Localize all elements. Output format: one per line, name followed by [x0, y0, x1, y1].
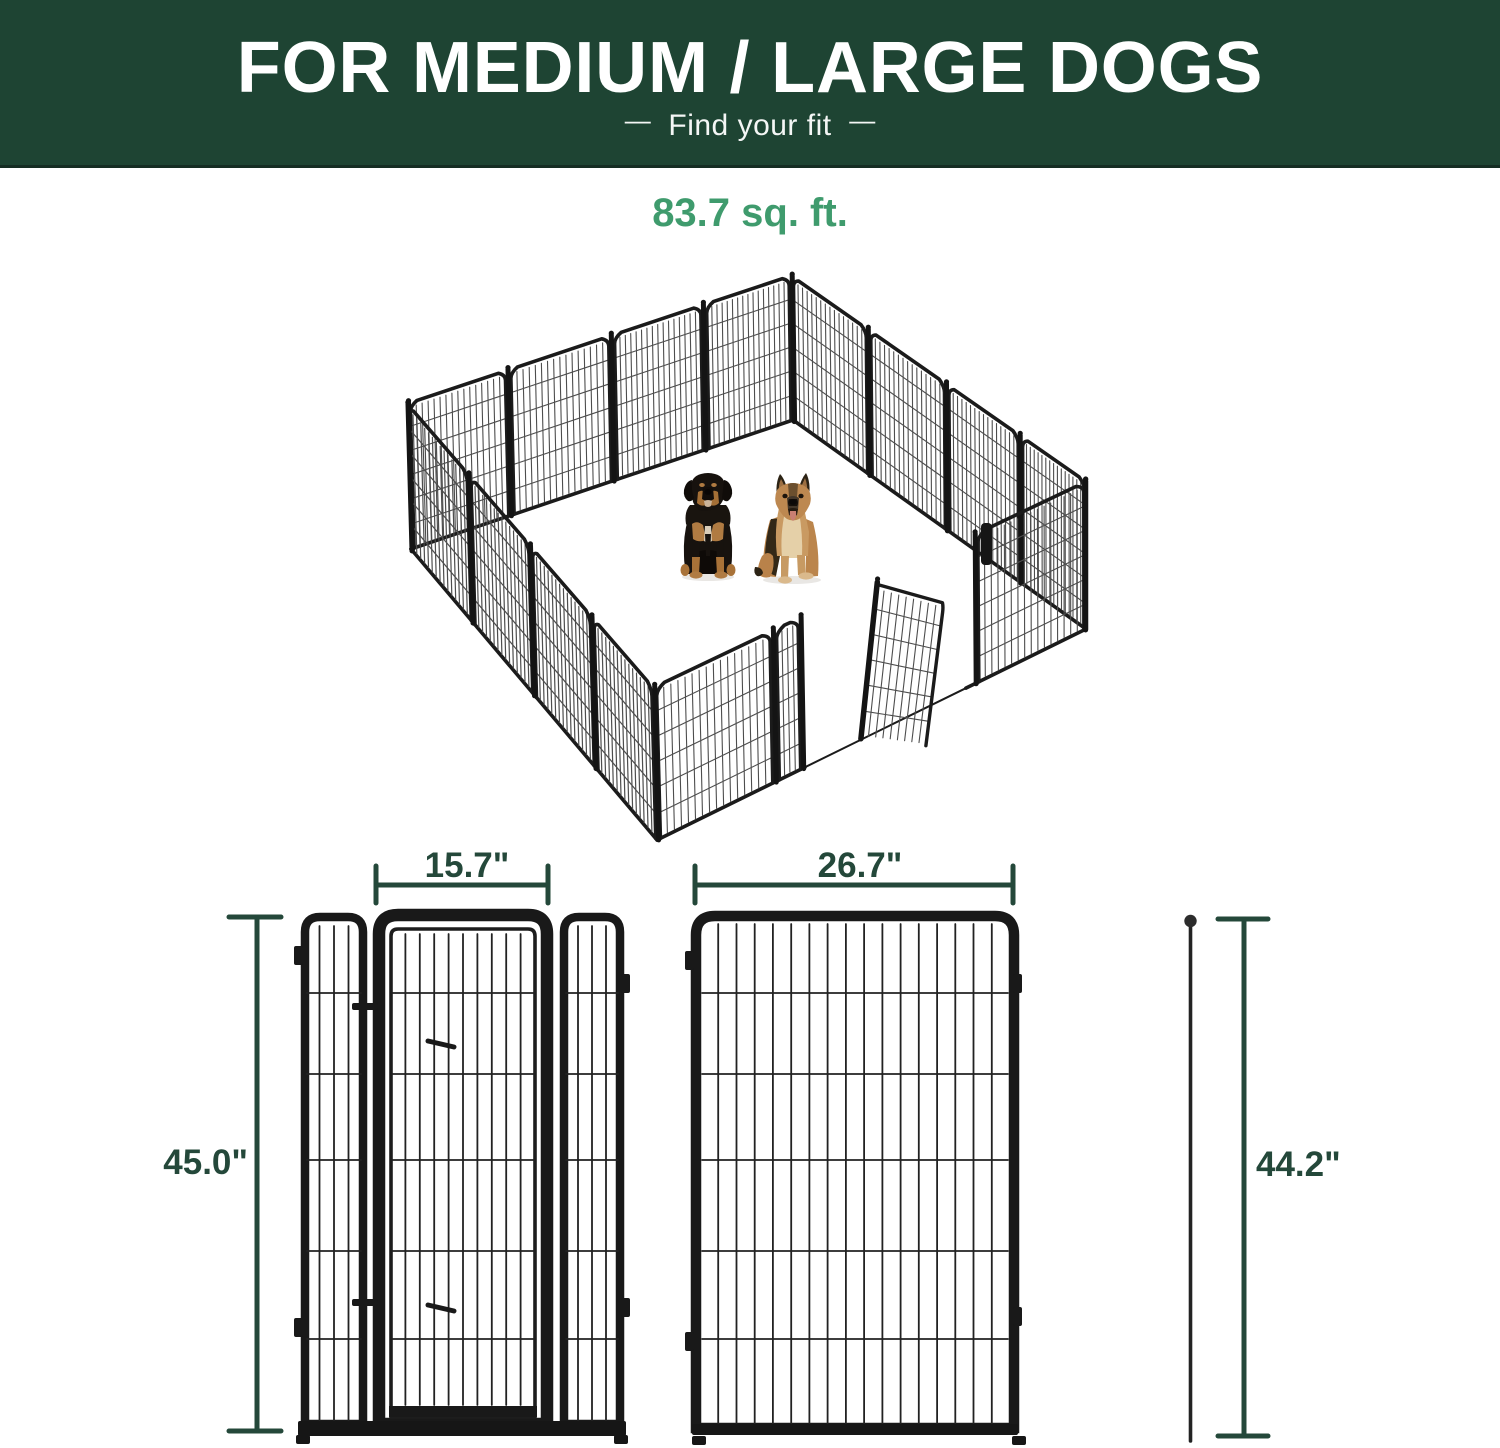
svg-text:45.0": 45.0"	[163, 1143, 248, 1182]
svg-text:44.2": 44.2"	[1256, 1145, 1341, 1184]
svg-text:26.7": 26.7"	[818, 846, 903, 885]
svg-text:15.7": 15.7"	[425, 846, 510, 885]
